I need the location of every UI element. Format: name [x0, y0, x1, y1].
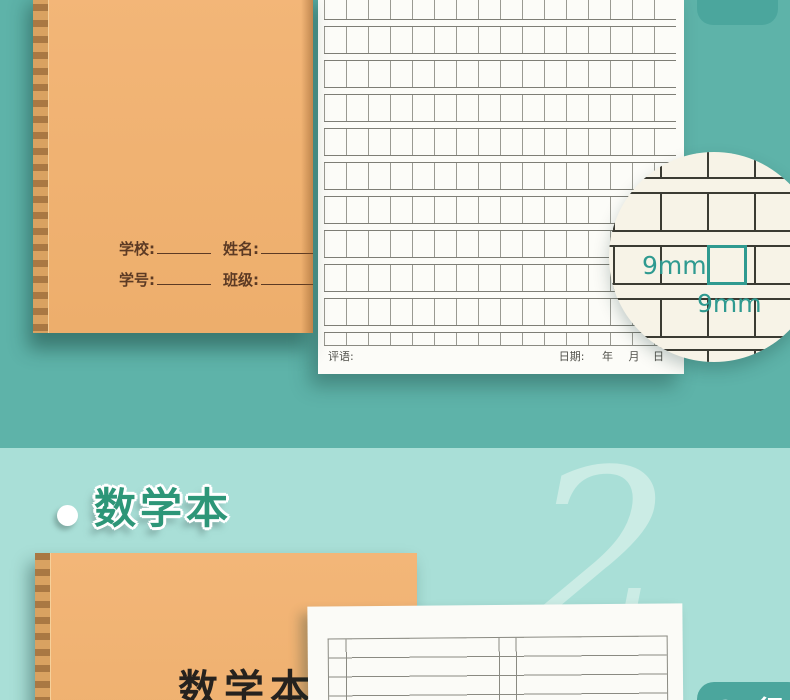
product-detail-image: 评语: 日期: 年 月 日 学校:姓名: 学号:班级: [0, 0, 790, 700]
cell-height-label: 9mm [697, 291, 762, 316]
section-title: 数学本 [94, 486, 232, 532]
section-grid-notebook: 评语: 日期: 年 月 日 学校:姓名: 学号:班级: [0, 0, 790, 448]
cell-width-label: 9mm [642, 253, 707, 278]
partial-badge-top-right [697, 0, 778, 25]
cover-info-fields: 学校:姓名: 学号:班级: [119, 239, 313, 301]
row-count-badge: 25行 [697, 682, 790, 700]
magnifier-circle: 9mm 9mm [609, 152, 790, 362]
notebook-spine-stitching [33, 0, 49, 333]
kraft-notebook-cover: 学校:姓名: 学号:班级: [33, 0, 313, 333]
class-label: 班级: [223, 271, 259, 289]
cover-right-edge-shade [301, 0, 313, 333]
school-label: 学校: [119, 240, 155, 258]
blank-line [157, 270, 211, 285]
notebook-spine-stitching [35, 553, 51, 700]
comment-label: 评语: [328, 348, 354, 364]
cover-field-row: 学校:姓名: [119, 239, 313, 259]
cover-title: 数学本 [178, 670, 316, 700]
bullet-dot-icon [57, 505, 78, 526]
date-label: 日期: [559, 348, 585, 364]
math-paper-page [307, 603, 683, 700]
student-id-label: 学号: [119, 271, 155, 289]
name-label: 姓名: [223, 240, 259, 258]
section-math-notebook: 2 数学本 数学本 25行 [0, 448, 790, 700]
math-table-grid [328, 635, 669, 700]
highlighted-grid-cell [707, 245, 747, 285]
blank-line [157, 239, 211, 254]
cover-field-row: 学号:班级: [119, 270, 313, 290]
